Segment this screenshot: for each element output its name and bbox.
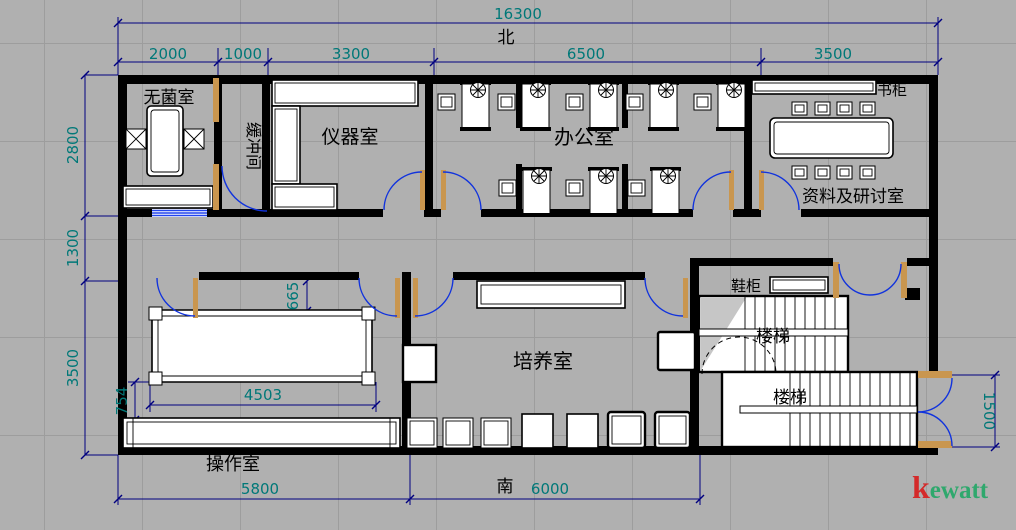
chair bbox=[837, 166, 852, 179]
dim-bottom-1: 6000 bbox=[531, 480, 569, 498]
stool bbox=[126, 129, 146, 149]
floor-plan-svg: 16300 2000 1000 3300 6500 3500 2800 1300… bbox=[0, 0, 1016, 530]
sterile-room-window bbox=[152, 209, 207, 217]
dim-right: 1500 bbox=[980, 392, 998, 430]
dim-table-gap-left: 754 bbox=[113, 387, 131, 416]
room-label-operation: 操作室 bbox=[206, 454, 260, 475]
dim-table-length: 4503 bbox=[244, 386, 282, 404]
chair bbox=[792, 102, 807, 115]
label-shoe-cabinet: 鞋柜 bbox=[731, 277, 761, 295]
compass-south: 南 bbox=[497, 477, 514, 497]
room-label-office: 办公室 bbox=[554, 125, 614, 149]
dim-top-1: 1000 bbox=[224, 45, 262, 63]
equipment-box bbox=[658, 332, 695, 370]
room-label-stair-upper: 楼梯 bbox=[756, 327, 790, 347]
logo-first-letter: k bbox=[912, 469, 930, 505]
stair-hall bbox=[699, 277, 917, 447]
chair bbox=[815, 102, 830, 115]
incubator bbox=[522, 414, 553, 448]
incubator bbox=[567, 414, 598, 448]
chair bbox=[837, 102, 852, 115]
shoe-cabinet-box bbox=[770, 277, 828, 293]
dim-top-4: 3500 bbox=[814, 45, 852, 63]
desk bbox=[626, 81, 679, 131]
room-label-culture: 培养室 bbox=[513, 349, 573, 373]
dim-left-1: 1300 bbox=[64, 229, 82, 267]
operation-room-furniture bbox=[123, 307, 400, 448]
table-corner bbox=[362, 307, 375, 320]
chair bbox=[860, 102, 875, 115]
table-corner bbox=[149, 307, 162, 320]
desk bbox=[566, 81, 619, 131]
incubator bbox=[481, 418, 511, 448]
office-furniture bbox=[438, 81, 747, 217]
logo-rest: ewatt bbox=[930, 477, 989, 504]
incubator bbox=[407, 418, 437, 448]
sterile-room-furniture bbox=[123, 106, 213, 208]
archive-room-furniture bbox=[752, 80, 893, 179]
room-label-archive: 资料及研讨室 bbox=[802, 187, 904, 207]
room-label-sterile: 无菌室 bbox=[144, 88, 195, 108]
dim-left-2: 3500 bbox=[64, 349, 82, 387]
incubator bbox=[443, 418, 473, 448]
table-corner bbox=[149, 372, 162, 385]
dim-bottom-0: 5800 bbox=[241, 480, 279, 498]
compass-north: 北 bbox=[498, 28, 515, 48]
desk bbox=[498, 81, 551, 131]
chair bbox=[815, 166, 830, 179]
bench bbox=[272, 106, 300, 184]
stool bbox=[184, 129, 204, 149]
kewatt-logo: kewatt bbox=[912, 469, 989, 505]
label-bookcase: 书柜 bbox=[877, 81, 907, 99]
bench bbox=[272, 80, 418, 106]
conference-table bbox=[770, 118, 893, 158]
bench bbox=[123, 418, 400, 448]
chair bbox=[792, 166, 807, 179]
chair bbox=[860, 166, 875, 179]
table-corner bbox=[362, 372, 375, 385]
room-label-stair-lower: 楼梯 bbox=[773, 388, 807, 408]
bookcase bbox=[752, 80, 876, 94]
desk bbox=[438, 81, 491, 131]
logo: kewatt bbox=[912, 469, 989, 505]
equipment-box bbox=[403, 345, 436, 382]
work-table bbox=[152, 310, 372, 382]
bench bbox=[272, 184, 337, 210]
room-label-buffer: 缓冲间 bbox=[244, 122, 263, 170]
dim-left-0: 2800 bbox=[64, 126, 82, 164]
incubator bbox=[655, 412, 690, 448]
dim-top-2: 3300 bbox=[332, 45, 370, 63]
dim-top-0: 2000 bbox=[149, 45, 187, 63]
incubator bbox=[608, 412, 645, 448]
room-label-instrument: 仪器室 bbox=[321, 126, 378, 148]
dim-top-3: 6500 bbox=[567, 45, 605, 63]
floor-plan-canvas: 16300 2000 1000 3300 6500 3500 2800 1300… bbox=[0, 0, 1016, 530]
lab-table bbox=[147, 106, 183, 176]
dim-table-gap-top: 665 bbox=[284, 282, 302, 311]
dim-total-width: 16300 bbox=[494, 5, 542, 23]
desk bbox=[694, 81, 747, 131]
